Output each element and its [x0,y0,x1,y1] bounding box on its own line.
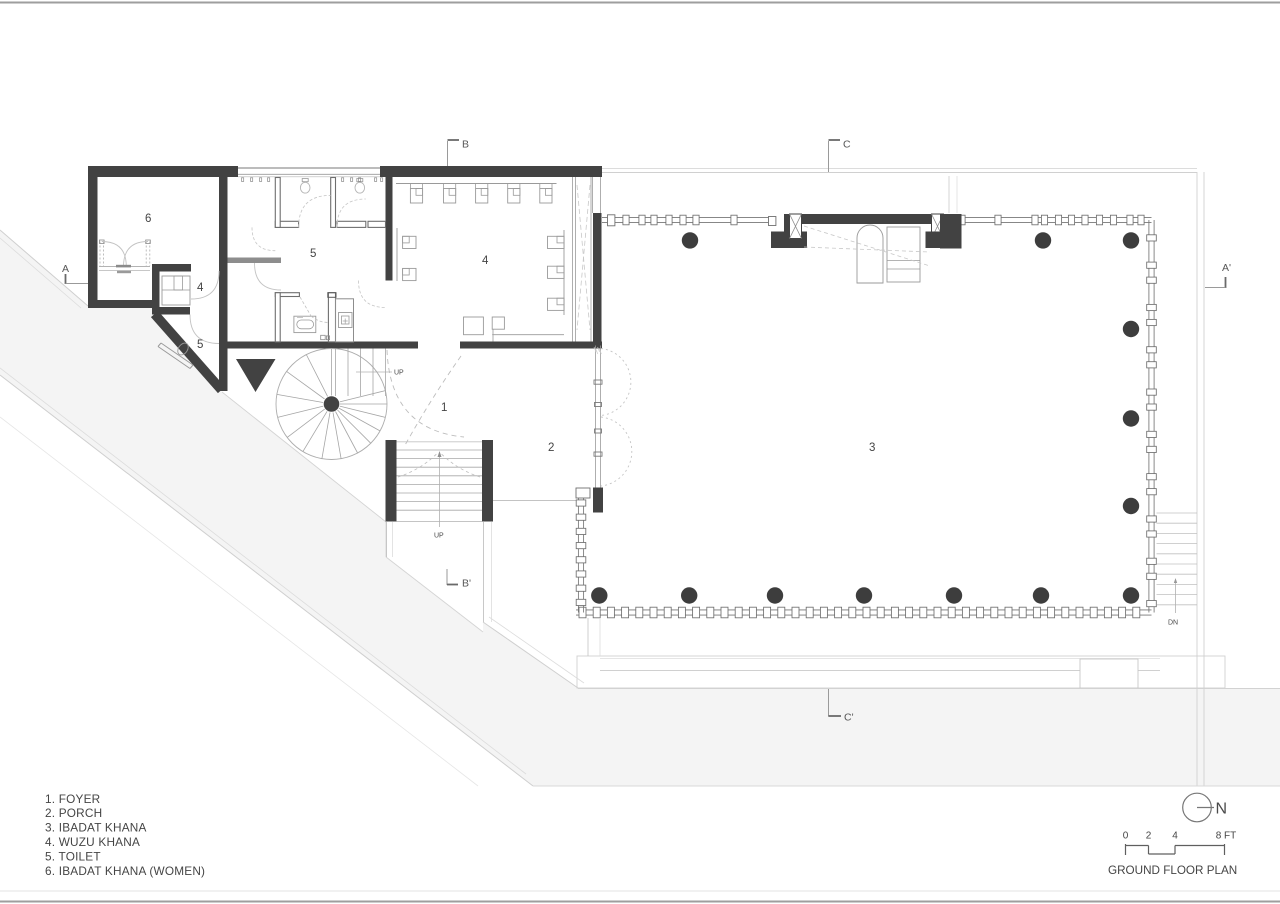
svg-text:UP: UP [434,533,444,540]
svg-text:2: 2 [1146,831,1152,842]
svg-text:A: A [62,263,69,275]
svg-text:6: 6 [145,213,151,225]
svg-text:5. TOILET: 5. TOILET [45,849,101,863]
svg-text:0: 0 [1123,831,1129,842]
svg-text:C': C' [844,712,854,724]
svg-text:5: 5 [197,339,203,351]
svg-text:2. PORCH: 2. PORCH [45,806,102,820]
svg-text:1: 1 [441,402,447,414]
svg-text:GROUND FLOOR PLAN: GROUND FLOOR PLAN [1108,864,1237,877]
svg-text:6. IBADAT KHANA (WOMEN): 6. IBADAT KHANA (WOMEN) [45,864,205,878]
svg-text:8 FT: 8 FT [1216,831,1237,842]
svg-text:4. WUZU KHANA: 4. WUZU KHANA [45,835,140,849]
svg-text:B': B' [462,578,471,590]
svg-text:B: B [462,139,469,151]
svg-text:N: N [1216,801,1228,818]
svg-text:UP: UP [394,370,404,377]
svg-text:C: C [843,139,851,151]
svg-text:5: 5 [310,248,316,260]
svg-text:3: 3 [869,442,875,454]
svg-text:A': A' [1222,262,1231,274]
svg-text:4: 4 [1172,831,1178,842]
svg-text:4: 4 [482,255,489,267]
svg-text:1. FOYER: 1. FOYER [45,792,100,806]
svg-text:2: 2 [548,442,554,454]
svg-text:3. IBADAT KHANA: 3. IBADAT KHANA [45,821,147,835]
svg-text:4: 4 [197,282,204,294]
svg-text:DN: DN [1168,620,1178,627]
